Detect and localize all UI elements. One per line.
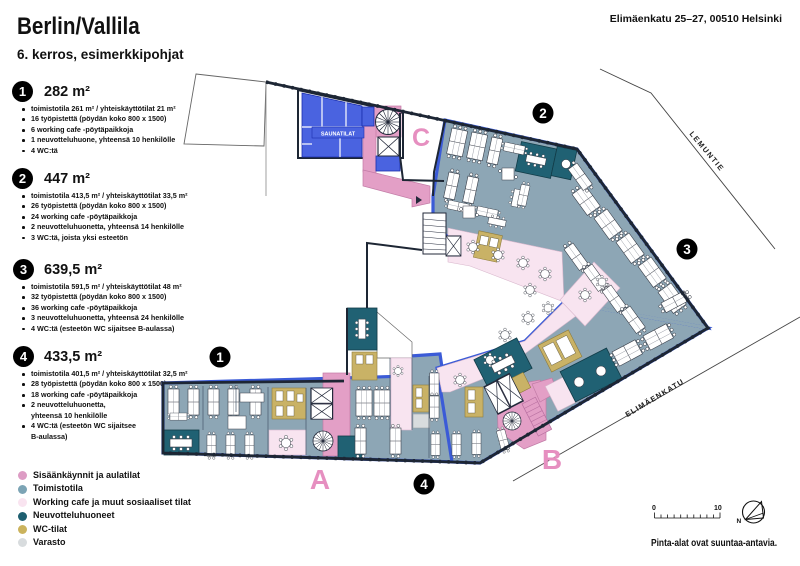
svg-text:3: 3 — [683, 242, 691, 257]
svg-text:ELIMÄENKATU: ELIMÄENKATU — [624, 377, 686, 419]
svg-text:0: 0 — [652, 505, 656, 512]
svg-text:1: 1 — [216, 350, 224, 365]
svg-text:B: B — [542, 444, 562, 475]
svg-text:N: N — [737, 518, 742, 525]
svg-text:C: C — [412, 124, 430, 152]
svg-text:LEMUNTIE: LEMUNTIE — [688, 130, 727, 174]
svg-text:2: 2 — [539, 106, 547, 121]
svg-text:4: 4 — [420, 477, 428, 492]
svg-text:A: A — [310, 464, 330, 495]
svg-text:SAUNATILAT: SAUNATILAT — [321, 131, 356, 137]
svg-text:10: 10 — [714, 505, 722, 512]
